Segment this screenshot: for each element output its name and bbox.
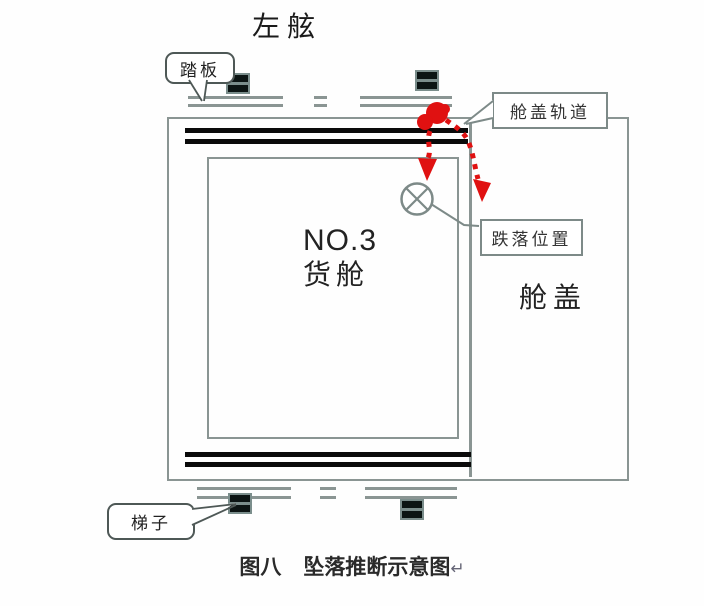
figure-number: 图八 [239,556,281,579]
cleat-bar [417,82,437,89]
ladder-rung [230,505,250,512]
pedal-callout: 踏板 [165,52,235,84]
deck-rail-line [360,104,452,107]
deck-rail-line [314,96,327,99]
deck-rail-line [188,96,283,99]
hatch-rail-track [185,462,471,467]
deck-rail-line [314,104,327,107]
paragraph-mark-icon: ↵ [450,559,464,578]
deck-rail-line [365,487,457,490]
ladder-callout-label: 梯子 [131,509,171,534]
hatch-cover-divider-line [469,117,472,477]
port-side-label: 左舷 [252,5,322,45]
hatch-rail-label-box: 舱盖轨道 [492,92,608,129]
deck-rail-line [320,487,336,490]
pedal-callout-label: 踏板 [180,56,220,81]
ladder-icon [228,493,252,514]
hatch-rail-track [185,128,468,133]
cargo-hold-opening [207,157,459,439]
fall-position-label-box: 跌落位置 [480,219,583,256]
deck-rail-line [320,496,336,499]
ladder-rung [230,495,250,502]
hatch-rail-label: 舱盖轨道 [510,98,590,123]
figure-caption: 图八坠落推断示意图↵ [0,551,704,581]
hold-name-label: NO.3 货舱 [303,223,377,293]
deck-rail-line [360,96,452,99]
hatch-rail-track [185,452,471,457]
ladder-rung [402,511,422,518]
cleat-bar [228,85,248,92]
hatch-rail-track [185,139,468,144]
ladder-rung [402,501,422,508]
cleat-bar [417,72,437,79]
hold-number-text: NO.3 [303,223,377,258]
cleat-icon [415,70,439,91]
deck-rail-line [188,104,283,107]
ladder-callout: 梯子 [107,503,195,540]
deck-rail-line [197,487,291,490]
ladder-icon [400,499,424,520]
hatch-cover-label: 舱盖 [519,276,587,316]
caption-text: 坠落推断示意图 [303,556,450,579]
diagram-canvas: 左舷 踏板 NO.3 货舱 舱盖 舱盖轨道 跌落位置 [0,0,704,606]
fall-position-label: 跌落位置 [492,225,572,250]
hold-cjk-text: 货舱 [303,258,377,293]
